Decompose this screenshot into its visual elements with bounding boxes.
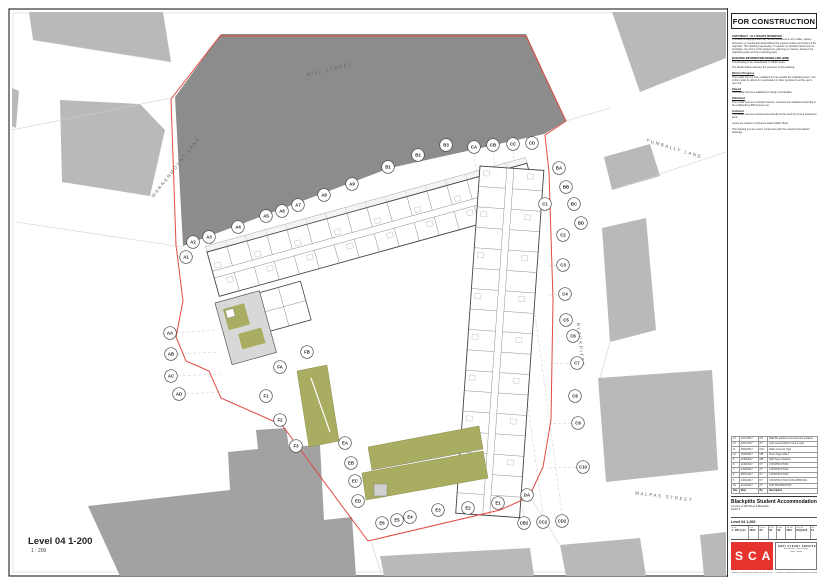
grid-bubble-label: BD xyxy=(578,221,584,226)
context-building xyxy=(560,538,646,576)
grid-bubble-label: A1 xyxy=(183,255,189,260)
ordnance-footer: Ordnance Survey Ireland Licence No. AR 0… xyxy=(730,572,818,582)
grid-bubble-label: ED xyxy=(355,499,361,504)
grid-bubble: E3 xyxy=(432,504,445,517)
grid-bubble: CB2 xyxy=(518,517,531,530)
grid-bubble: C6 xyxy=(567,330,580,343)
title-block-field: DrawnKT xyxy=(759,526,768,539)
grid-bubble-label: C9 xyxy=(575,421,581,426)
grid-bubble: BC xyxy=(568,198,581,211)
grid-bubble: A6 xyxy=(276,205,289,218)
revision-row: 1313/12/2017MTM&E BC partitions removed … xyxy=(732,437,818,442)
grid-bubble: CB xyxy=(487,139,500,152)
grid-bubble: AA xyxy=(164,327,177,340)
grid-bubble-label: EB xyxy=(348,461,354,466)
grid-bubble-label: C3 xyxy=(560,263,566,268)
note-body: This Drawing to be viewed/read in a BIM … xyxy=(732,61,817,64)
green-roof-strip xyxy=(297,365,339,447)
grid-bubble: AC xyxy=(165,370,178,383)
note-body: This model has not been validated for us… xyxy=(732,76,817,86)
grid-bubble: E6 xyxy=(376,517,389,530)
revision-header-cell: Description xyxy=(768,488,818,493)
grid-bubble: DA xyxy=(521,489,534,502)
revision-table: 1313/12/2017MTM&E BC partitions removed … xyxy=(731,436,818,494)
street-label: FUMBALLY LANE xyxy=(646,138,703,160)
title-block-field: StageS4 xyxy=(777,526,786,539)
project-address-2: Dublin 8 xyxy=(731,508,817,511)
grid-bubble: E1 xyxy=(492,497,505,510)
note: The Model Status indicates the purposes … xyxy=(732,66,817,69)
grid-bubble: AD xyxy=(173,388,186,401)
grid-bubble: CC2 xyxy=(537,516,550,529)
title-block-panel: FOR CONSTRUCTION COPYRIGHT : ALL RIGHTS … xyxy=(727,8,820,577)
note-body: This work is copyright and may not be re… xyxy=(732,38,817,54)
grid-bubble-label: BA xyxy=(556,166,562,171)
grid-bubble: F2 xyxy=(274,414,287,427)
view-title: Level 04 1-200 1 : 200 xyxy=(28,536,92,554)
grid-bubble: A1 xyxy=(180,251,193,264)
revision-header-row: Rev.DateByDescription xyxy=(732,488,818,493)
note: Work in ProgressThis model has not been … xyxy=(732,72,817,85)
grid-bubble-label: AB xyxy=(168,352,174,357)
grid-bubble: CD xyxy=(526,137,539,150)
architect-contact-line: Dublin, Ireland xyxy=(778,551,814,554)
grid-bubble-label: C8 xyxy=(572,394,578,399)
grid-bubble-label: E2 xyxy=(465,506,471,511)
for-construction-stamp: FOR CONSTRUCTION xyxy=(731,13,817,29)
note-body: This drawing is to be read in conjunctio… xyxy=(732,128,817,135)
note: SharedThis model has been validated for … xyxy=(732,88,817,95)
view-title-text: Level 04 1-200 xyxy=(28,536,92,547)
grid-bubble-label: C6 xyxy=(570,334,576,339)
project-title-block: Blackpitts Student Accommodation Junctio… xyxy=(731,496,817,517)
grid-bubble: BB xyxy=(560,181,573,194)
grid-bubble-label: EA xyxy=(342,441,348,446)
grid-bubble-label: A4 xyxy=(235,225,241,230)
field-value: 13 xyxy=(811,529,816,532)
grid-bubble-label: C7 xyxy=(574,361,580,366)
grid-bubble: A7 xyxy=(292,199,305,212)
context-building xyxy=(60,100,165,196)
grid-bubble: FA xyxy=(274,361,287,374)
grid-bubble: BD xyxy=(575,217,588,230)
field-value: S4 xyxy=(777,529,784,532)
revision-header-cell: Date xyxy=(739,488,758,493)
grid-bubble: EB xyxy=(345,457,358,470)
grid-bubble: ED xyxy=(352,495,365,508)
grid-bubble: F3 xyxy=(290,440,303,453)
grid-bubble-label: C2 xyxy=(560,233,566,238)
revision-cell: M&E BC partitions removed and updated xyxy=(768,437,818,442)
context-building xyxy=(12,88,19,128)
context-building xyxy=(602,218,656,342)
grid-bubble-label: CB2 xyxy=(520,521,529,526)
revision-header-cell: By xyxy=(758,488,767,493)
grid-bubble: F1 xyxy=(260,390,273,403)
note: PublishedThis model has been formally ch… xyxy=(732,97,817,107)
context-building-bottom-left xyxy=(88,428,356,576)
rooflight xyxy=(374,484,387,496)
grid-bubble-label: E3 xyxy=(435,508,441,513)
drawing-title: Level 04 1-200 xyxy=(731,517,817,525)
field-value: 1614 xyxy=(786,529,794,532)
title-block-field: Rev13 xyxy=(811,526,817,539)
grid-bubble-label: C4 xyxy=(562,292,568,297)
note-body: This model has been archived and should … xyxy=(732,113,817,120)
grid-bubble-label: CC2 xyxy=(539,520,548,525)
grid-bubble-label: A9 xyxy=(349,182,355,187)
grid-bubble: C10 xyxy=(577,461,590,474)
grid-bubble: C2 xyxy=(557,229,570,242)
grid-bubble-label: FB xyxy=(304,350,310,355)
logo-row: SCA SHAY CLEARY ARCHITECTS Architecture … xyxy=(731,542,817,570)
grid-bubble: A9 xyxy=(346,178,359,191)
grid-bubble-label: AC xyxy=(168,374,174,379)
grid-bubble: CC xyxy=(507,138,520,151)
grid-bubble-label: E6 xyxy=(379,521,385,526)
grid-bubble: A3 xyxy=(203,231,216,244)
grid-bubble: A5 xyxy=(260,210,273,223)
grid-bubble-label: DA xyxy=(524,493,530,498)
grid-bubble-label: CB xyxy=(490,143,496,148)
title-block-fields: Scale1 : 200 @ A1Date12/17DrawnKTChkdAFS… xyxy=(731,525,817,540)
grid-bubble: E5 xyxy=(391,514,404,527)
context-building xyxy=(598,370,718,482)
context-building xyxy=(29,12,171,62)
grid-bubble: A4 xyxy=(232,221,245,234)
grid-bubble: E2 xyxy=(462,502,475,515)
field-value: 12/17 xyxy=(750,529,758,532)
grid-bubble-label: BC xyxy=(571,202,577,207)
grid-bubble-label: B1 xyxy=(385,165,391,170)
drawing-sheet: MILL STREETWARRENMOUNT LANEFUMBALLY LANE… xyxy=(0,0,828,585)
grid-bubble: EA xyxy=(339,437,352,450)
grid-bubble-label: C1 xyxy=(542,202,548,207)
grid-bubble-label: CD2 xyxy=(558,519,567,524)
grid-bubble: B2 xyxy=(412,149,425,162)
grid-bubble-label: A2 xyxy=(190,240,196,245)
grid-bubble: C3 xyxy=(557,259,570,272)
grid-bubble: C1 xyxy=(539,198,552,211)
grid-bubble: CA xyxy=(468,141,481,154)
grid-bubble-label: CC xyxy=(510,142,516,147)
note: BUILDING INFORMATION MODELLING (BIM)This… xyxy=(732,57,817,64)
grid-bubble-label: F1 xyxy=(263,394,269,399)
architect-contact-lines: Architecture + Urban DesignDublin, Irela… xyxy=(778,548,814,553)
sca-logo: SCA xyxy=(731,542,773,570)
context-building xyxy=(700,532,726,576)
grid-bubble-label: F3 xyxy=(293,444,299,449)
grid-bubble-label: E1 xyxy=(495,501,501,506)
context-building xyxy=(380,548,534,576)
grid-bubble-label: CA xyxy=(471,145,477,150)
note-body: The Model Status indicates the purposes … xyxy=(732,66,817,69)
grid-bubble: C9 xyxy=(572,417,585,430)
grid-bubble-label: BB xyxy=(563,185,569,190)
grid-bubble-label: A7 xyxy=(295,203,301,208)
grid-bubble-label: C5 xyxy=(563,318,569,323)
title-block-field: Job No1614 xyxy=(786,526,796,539)
grid-bubble: C8 xyxy=(569,390,582,403)
grid-bubble: B3 xyxy=(440,139,453,152)
grid-bubble-label: B3 xyxy=(443,143,449,148)
grid-bubble: C7 xyxy=(571,357,584,370)
grid-bubble: C5 xyxy=(560,314,573,327)
field-value: AF xyxy=(769,529,775,532)
project-title: Blackpitts Student Accommodation xyxy=(731,499,817,505)
grid-bubble-label: E5 xyxy=(394,518,400,523)
grid-bubble-label: CD xyxy=(529,141,535,146)
grid-bubble-label: C10 xyxy=(579,465,587,470)
grid-bubble: B1 xyxy=(382,161,395,174)
grid-bubble-label: AD xyxy=(176,392,182,397)
grid-bubble-label: AA xyxy=(167,331,173,336)
revision-header-cell: Rev. xyxy=(732,488,740,493)
grid-bubble: EC xyxy=(349,475,362,488)
revision-row: 523/06/2017KTCONSTRUCTION FOR APPROVAL xyxy=(732,478,818,483)
street-label: MALPAS STREET xyxy=(635,490,694,502)
grid-bubble-label: B2 xyxy=(415,153,421,158)
note-body: This model has been formally checked, re… xyxy=(732,101,817,108)
title-block-field: Date12/17 xyxy=(749,526,759,539)
title-block-field: ChkdAF xyxy=(769,526,777,539)
field-value: 1 : 200 @ A1 xyxy=(732,529,748,532)
grid-bubble-label: F2 xyxy=(277,418,283,423)
grid-bubble-label: FA xyxy=(277,365,283,370)
grid-bubble: A8 xyxy=(318,189,331,202)
grid-bubble: CD2 xyxy=(556,515,569,528)
grid-bubble: AB xyxy=(165,348,178,361)
note: ArchivedThis model has been archived and… xyxy=(732,110,817,120)
field-value: KT xyxy=(760,529,767,532)
note: This drawing is to be read in conjunctio… xyxy=(732,128,817,135)
context-building xyxy=(612,12,726,92)
grid-bubble: E4 xyxy=(404,511,417,524)
grid-bubble-label: A3 xyxy=(206,235,212,240)
field-value: PL(0)-104 xyxy=(796,529,809,532)
note-body: This model has been validated for design… xyxy=(732,91,817,94)
grid-bubble-label: E4 xyxy=(407,515,413,520)
grid-bubble: FB xyxy=(301,346,314,359)
green-roofs xyxy=(297,365,488,500)
grid-bubble-label: A6 xyxy=(279,209,285,214)
grid-bubble: C4 xyxy=(559,288,572,301)
title-block-field: Dwg NoPL(0)-104 xyxy=(796,526,811,539)
grid-bubble: BA xyxy=(553,162,566,175)
grid-bubble-label: EC xyxy=(352,479,358,484)
note-body: Levels are related to Ordnance Datum Mal… xyxy=(732,122,817,125)
note: Levels are related to Ordnance Datum Mal… xyxy=(732,122,817,125)
grid-bubble-label: A8 xyxy=(321,193,327,198)
grid-bubble-label: A5 xyxy=(263,214,269,219)
grid-bubble: A2 xyxy=(187,236,200,249)
general-notes: COPYRIGHT : ALL RIGHTS RESERVEDThis work… xyxy=(732,35,817,431)
note: COPYRIGHT : ALL RIGHTS RESERVEDThis work… xyxy=(732,35,817,55)
site-plan-svg: MILL STREETWARRENMOUNT LANEFUMBALLY LANE… xyxy=(0,0,828,585)
view-scale-text: 1 : 200 xyxy=(31,548,92,554)
title-block-field: Scale1 : 200 @ A1 xyxy=(731,526,749,539)
architect-box: SHAY CLEARY ARCHITECTS Architecture + Ur… xyxy=(775,542,817,570)
